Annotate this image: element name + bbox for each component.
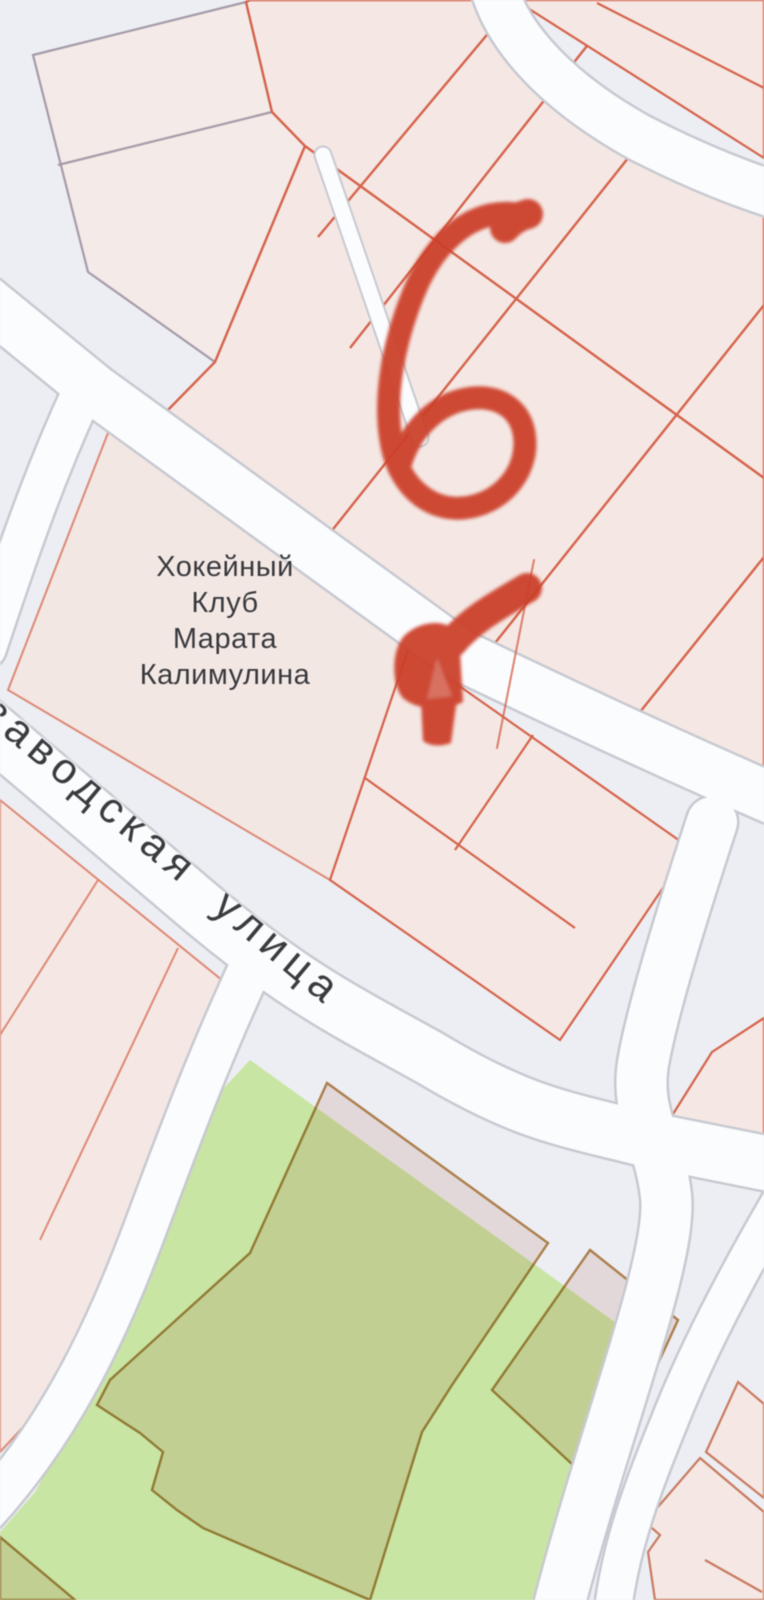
poi-label-line: Марата: [105, 621, 345, 657]
map-canvas[interactable]: Хокейный Клуб Марата Калимулина озаводск…: [0, 0, 764, 1600]
poi-label-line: Клуб: [105, 585, 345, 621]
poi-label-hockey-club: Хокейный Клуб Марата Калимулина: [105, 549, 345, 693]
poi-label-line: Калимулина: [105, 657, 345, 693]
poi-label-line: Хокейный: [105, 549, 345, 585]
